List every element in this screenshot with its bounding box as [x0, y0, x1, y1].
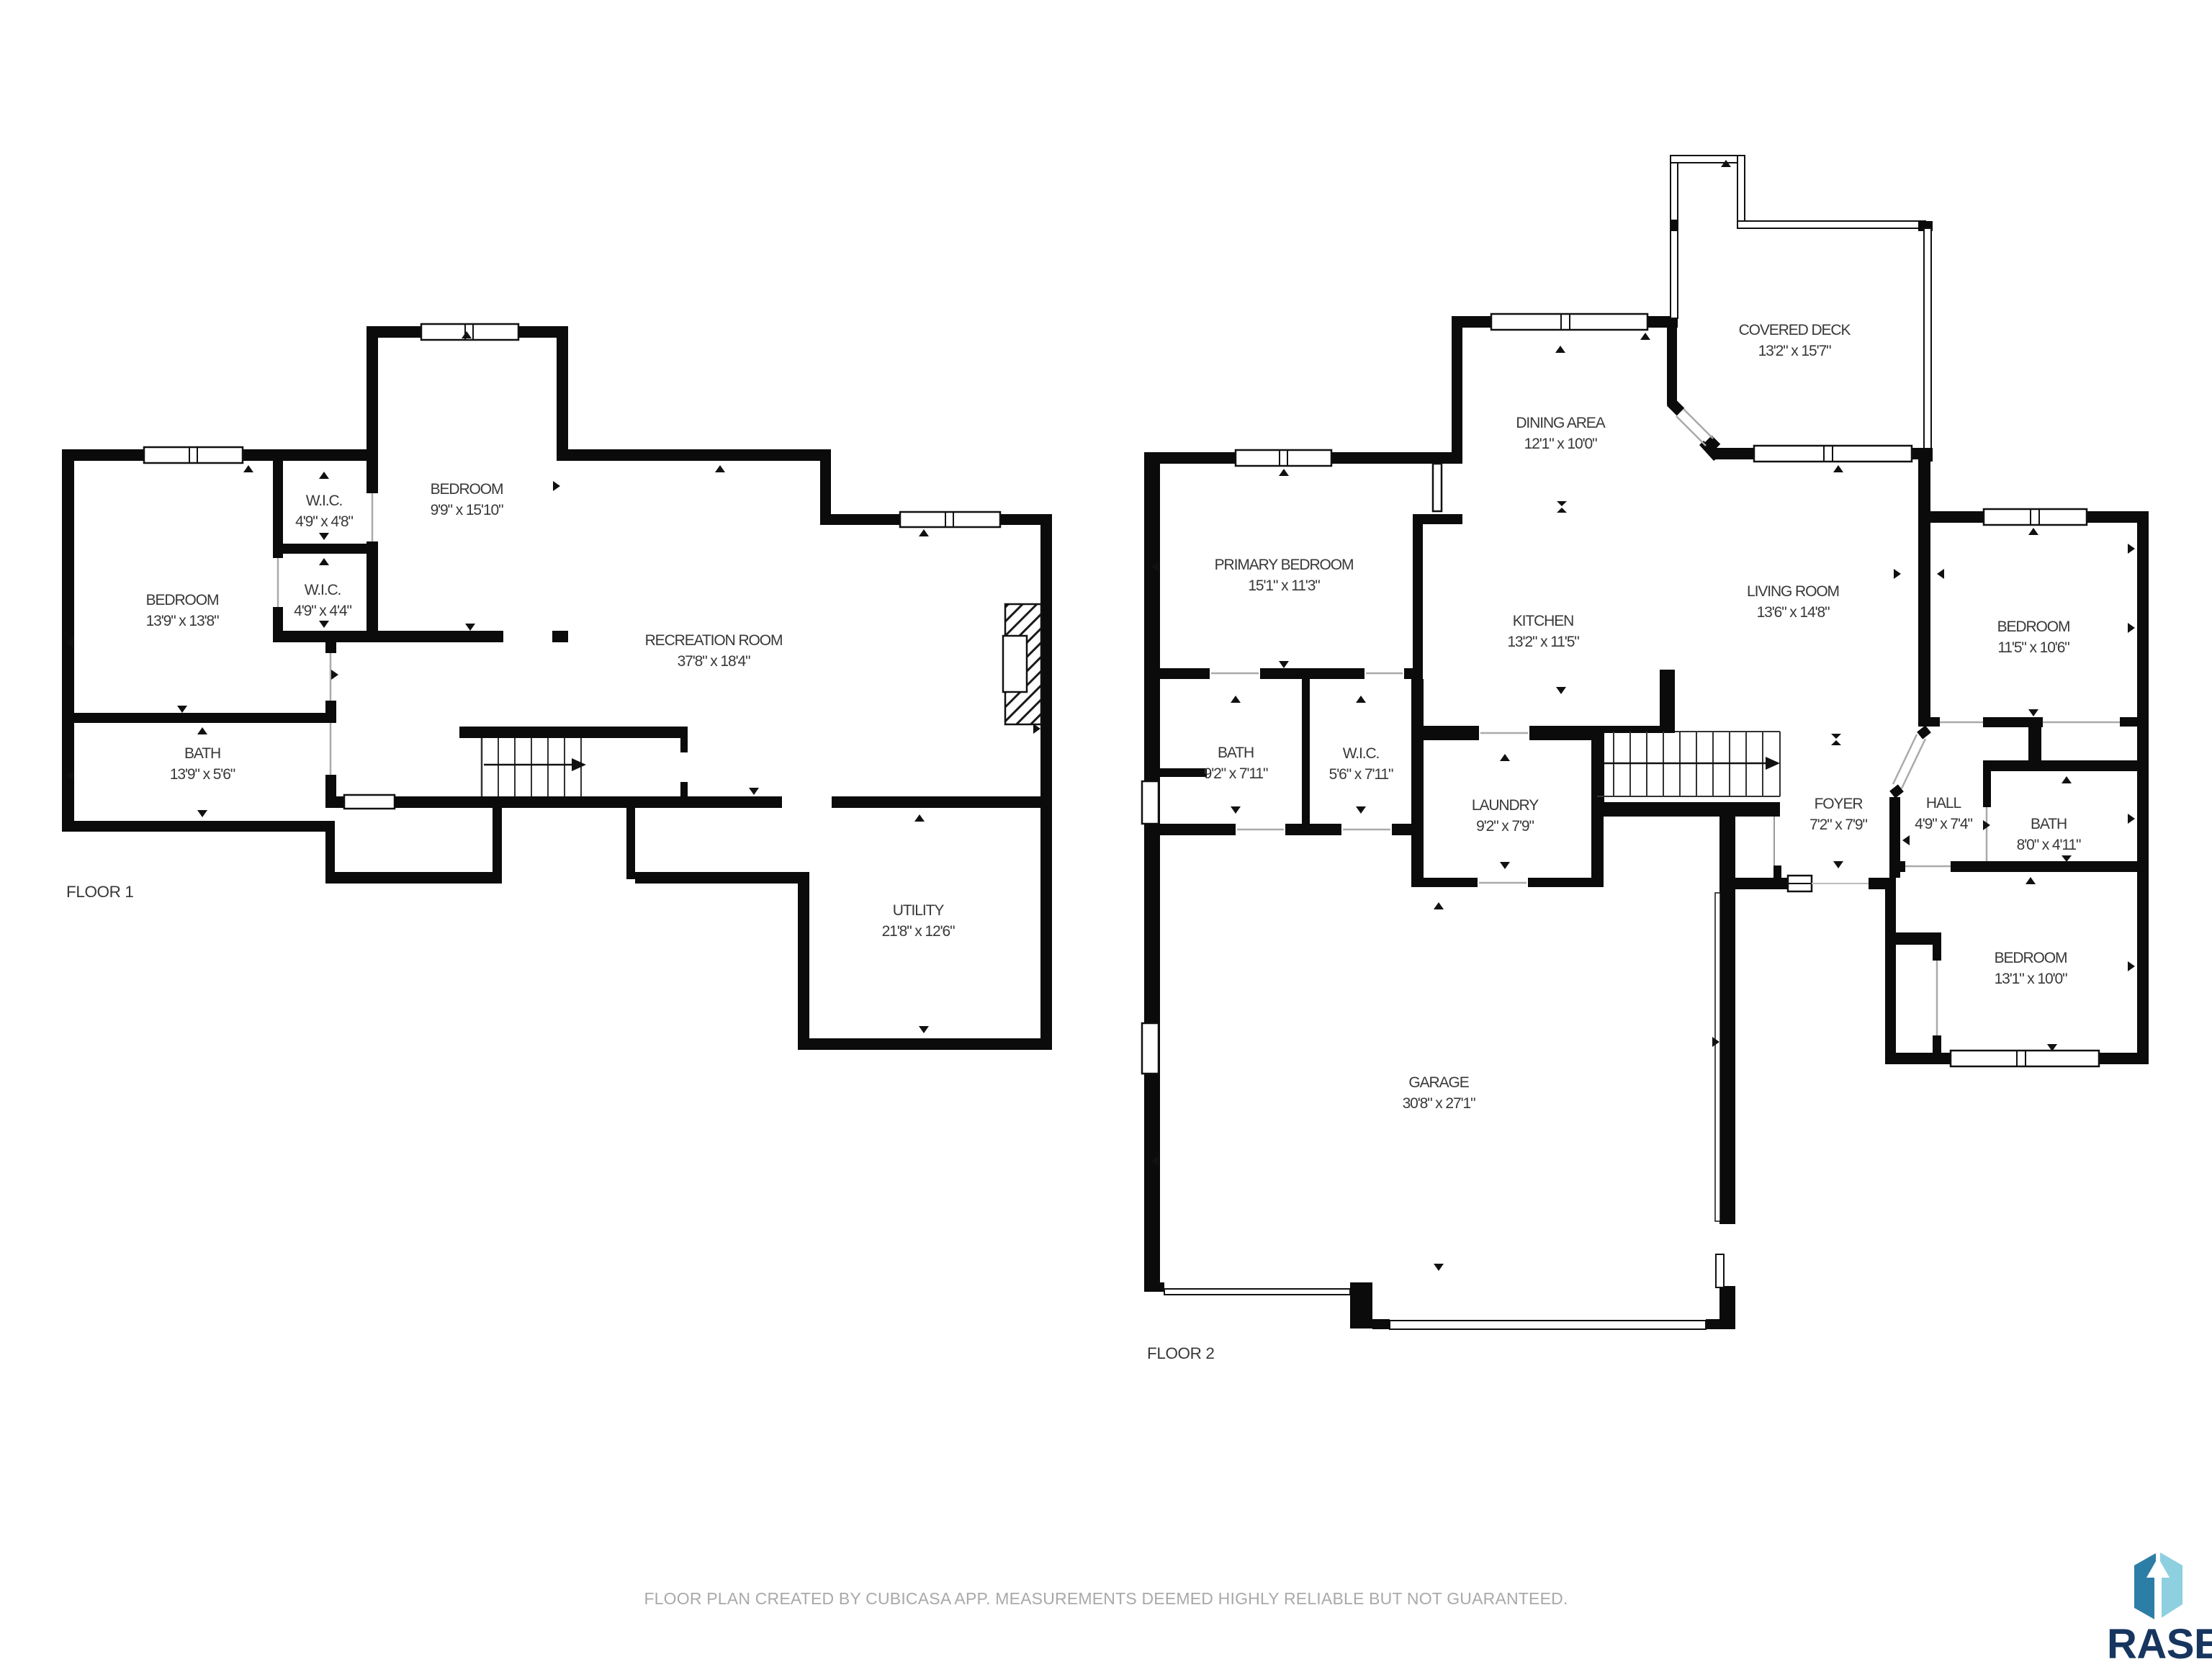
svg-text:BATH: BATH	[184, 745, 220, 762]
svg-text:7'2" x 7'9": 7'2" x 7'9"	[1809, 817, 1867, 833]
svg-text:GARAGE: GARAGE	[1408, 1074, 1469, 1091]
svg-text:BEDROOM: BEDROOM	[1995, 950, 2067, 966]
svg-text:13'9" x 13'8": 13'9" x 13'8"	[146, 613, 220, 629]
svg-text:21'8" x 12'6": 21'8" x 12'6"	[882, 923, 956, 940]
svg-text:4'9" x 4'4": 4'9" x 4'4"	[294, 603, 351, 619]
svg-text:30'8" x 27'1": 30'8" x 27'1"	[1403, 1095, 1476, 1112]
svg-text:13'6" x 14'8": 13'6" x 14'8"	[1757, 604, 1830, 621]
svg-text:FLOOR PLAN CREATED BY CUBICASA: FLOOR PLAN CREATED BY CUBICASA APP. MEAS…	[644, 1589, 1568, 1608]
svg-text:RASE: RASE	[2107, 1621, 2212, 1659]
svg-text:13'1" x 10'0": 13'1" x 10'0"	[1995, 971, 2068, 987]
svg-text:5'6" x 7'11": 5'6" x 7'11"	[1329, 766, 1393, 783]
svg-text:BATH: BATH	[1218, 745, 1254, 761]
svg-text:W.I.C.: W.I.C.	[306, 493, 343, 509]
svg-text:11'5" x 10'6": 11'5" x 10'6"	[1997, 639, 2069, 656]
svg-text:W.I.C.: W.I.C.	[305, 582, 341, 598]
svg-text:BATH: BATH	[2031, 816, 2067, 832]
svg-text:BEDROOM: BEDROOM	[146, 592, 219, 608]
svg-text:9'9" x 15'10": 9'9" x 15'10"	[431, 502, 504, 518]
svg-text:HALL: HALL	[1926, 795, 1961, 811]
svg-text:LAUNDRY: LAUNDRY	[1472, 797, 1539, 814]
svg-text:PRIMARY BEDROOM: PRIMARY BEDROOM	[1215, 557, 1354, 573]
svg-text:BEDROOM: BEDROOM	[1997, 619, 2070, 635]
svg-text:9'2" x 7'11": 9'2" x 7'11"	[1204, 765, 1268, 782]
svg-text:DINING AREA: DINING AREA	[1516, 415, 1605, 431]
svg-text:KITCHEN: KITCHEN	[1513, 613, 1573, 629]
svg-text:COVERED DECK: COVERED DECK	[1739, 322, 1851, 338]
svg-text:12'1" x 10'0": 12'1" x 10'0"	[1524, 436, 1598, 452]
svg-text:W.I.C.: W.I.C.	[1343, 745, 1380, 762]
svg-text:FOYER: FOYER	[1815, 796, 1863, 812]
svg-text:37'8" x 18'4": 37'8" x 18'4"	[678, 653, 751, 670]
svg-text:13'9" x 5'6": 13'9" x 5'6"	[170, 766, 235, 783]
svg-text:13'2" x 15'7": 13'2" x 15'7"	[1758, 343, 1832, 359]
svg-text:13'2" x 11'5": 13'2" x 11'5"	[1507, 634, 1579, 650]
svg-text:4'9" x 7'4": 4'9" x 7'4"	[1915, 816, 1972, 832]
svg-text:FLOOR 1: FLOOR 1	[66, 883, 133, 901]
svg-text:FLOOR 2: FLOOR 2	[1147, 1344, 1214, 1362]
svg-text:4'9" x 4'8": 4'9" x 4'8"	[295, 513, 353, 530]
svg-text:BEDROOM: BEDROOM	[431, 481, 503, 498]
svg-text:9'2" x 7'9": 9'2" x 7'9"	[1476, 818, 1534, 835]
svg-text:RECREATION ROOM: RECREATION ROOM	[645, 632, 783, 649]
svg-text:15'1" x 11'3": 15'1" x 11'3"	[1248, 577, 1320, 594]
svg-text:LIVING ROOM: LIVING ROOM	[1747, 583, 1839, 600]
svg-text:8'0" x 4'11": 8'0" x 4'11"	[2017, 837, 2081, 853]
svg-text:UTILITY: UTILITY	[893, 902, 945, 919]
